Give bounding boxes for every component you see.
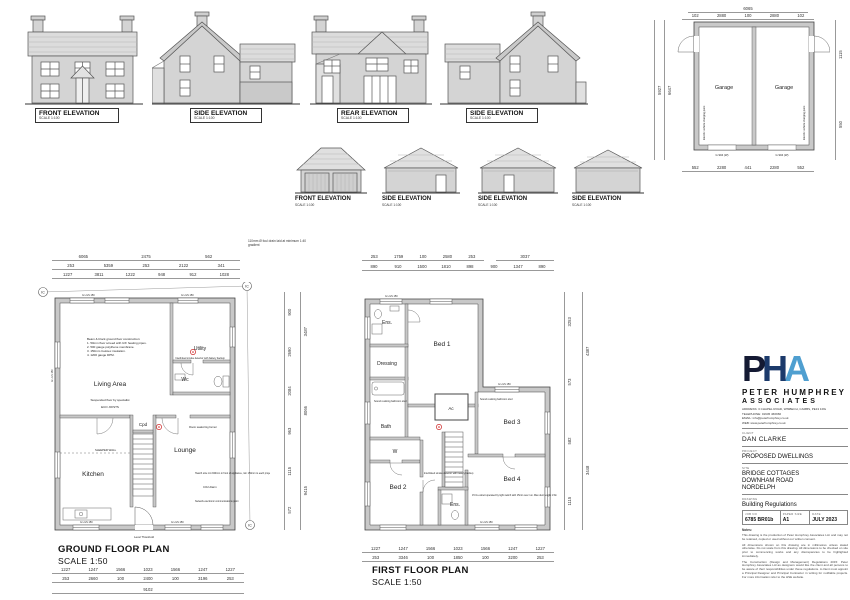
dim-value: 100: [411, 255, 435, 260]
dim-value: 1028: [209, 273, 240, 278]
dim-value: 253: [52, 264, 90, 269]
ev-charging-note: Electric vehicle charging point: [802, 105, 806, 140]
garage-room-label: Garage: [715, 85, 733, 91]
room-label-kitchen: Kitchen: [82, 471, 104, 478]
elevation-scale: SCALE 1:100: [478, 203, 560, 207]
house-side-elevation-2: SIDE ELEVATION SCALE 1:100: [440, 6, 588, 130]
pha-logo: PHA: [742, 352, 848, 386]
dim-value: 100: [417, 556, 444, 561]
drawing-label: DRAWING: [742, 497, 848, 501]
house-side-elevation-1-drawing: [152, 6, 300, 106]
dim-value: 9415: [301, 451, 310, 530]
dim-value: 3448: [583, 411, 592, 530]
dim-value: 582: [565, 411, 574, 471]
garage-side-elevation-2: SIDE ELEVATION SCALE 1:100: [478, 140, 560, 218]
lintel-label: G L/LS 150: [82, 294, 95, 297]
side-door: [504, 175, 514, 192]
window: [106, 84, 124, 98]
site-line: BRIDGE COTTAGES: [742, 471, 848, 477]
notes-paragraph-1: This drawing is the production of Peter …: [742, 534, 848, 542]
room-label-bed1: Bed 1: [434, 341, 451, 348]
dim-value: 3200: [499, 556, 526, 561]
dim-value: 948: [146, 273, 177, 278]
job-info-row: JOB NO 6785 BR01b PAPER SIZE A1 DATE JUL…: [742, 510, 848, 525]
company-name-line1: PETER HUMPHREY: [742, 388, 848, 397]
dim-value: 1566: [472, 547, 499, 552]
room-label-wc: Wc: [181, 377, 189, 383]
house-front-elevation: FRONT ELEVATION SCALE 1:100: [25, 6, 143, 130]
stairs: [445, 432, 463, 487]
elevation-title: FRONT ELEVATION: [295, 196, 371, 203]
garage-room-label: Garage: [775, 85, 793, 91]
note-suspended-floor: Suspended floor by specialist: [90, 398, 129, 402]
dim-value: 573: [565, 352, 574, 412]
window: [41, 84, 59, 98]
dim-value: 1566: [107, 568, 134, 573]
dim-value: 562: [177, 255, 240, 260]
side-door: [436, 175, 446, 192]
dim-value: 3811: [83, 273, 114, 278]
dim-value: 253: [362, 255, 386, 260]
elevation-label: SIDE ELEVATION SCALE 1:100: [190, 108, 262, 123]
dim-value: 100: [162, 577, 189, 582]
ic-label: IC: [248, 524, 252, 528]
dim-value: 552: [682, 166, 708, 171]
dim-value: 552: [788, 166, 814, 171]
room-label-dressing: Dressing: [377, 361, 397, 367]
ff-dims-bottom-2: 253334610018501003200253: [362, 554, 554, 562]
dim-value: 1247: [189, 568, 216, 573]
note-smoke: Interlinked smoke detector with battery …: [424, 472, 474, 475]
window: [324, 60, 340, 73]
elevation-label: SIDE ELEVATION SCALE 1:100: [466, 108, 538, 123]
lintel-label: G L/LS 150: [498, 383, 511, 386]
garage-side-elevation-1-drawing: [382, 140, 460, 196]
dim-value: 1347: [506, 265, 530, 270]
house-rear-elevation: REAR ELEVATION SCALE 1:100: [310, 6, 432, 130]
date-label: DATE: [812, 512, 845, 516]
project-name: PROPOSED DWELLINGS: [742, 454, 848, 460]
window: [180, 80, 190, 96]
garage-door-width: G 904 (W): [716, 153, 729, 157]
note-hearth: Hearth size min 840mm in front of applia…: [195, 472, 270, 475]
notes-label: Notes:: [742, 528, 848, 532]
dim-value: 3196: [189, 577, 216, 582]
note-sound-stud: Sound resisting bathroom stud: [374, 400, 407, 403]
date-cell: DATE JULY 2023: [810, 511, 847, 524]
garage-dims-left-inner: 6647: [664, 20, 674, 160]
stairs: [133, 434, 153, 496]
bath-fixture: [372, 382, 404, 395]
plan-title: FIRST FLOOR PLAN: [372, 566, 469, 577]
site-line: NORDELPH: [742, 485, 848, 491]
dim-value: 2084: [285, 371, 294, 411]
dim-value: 1227: [52, 273, 83, 278]
paper-size-value: A1: [783, 517, 808, 523]
dim-value: 1222: [115, 273, 146, 278]
dim-value: 5359: [90, 264, 128, 269]
dim-value: 2580: [435, 255, 459, 260]
site-line: DOWNHAM ROAD: [742, 478, 848, 484]
room-label-ens2: Ens.: [450, 502, 460, 508]
window: [41, 62, 59, 76]
elevation-label: REAR ELEVATION SCALE 1:100: [337, 108, 409, 123]
garage-dims-bottom: 55222804412280552: [682, 164, 814, 172]
ff-dims-right-1: 32535735821115: [564, 292, 574, 530]
foul-drain-note: 110mm Ø foul drain laid at minimum 1:40 …: [248, 240, 310, 248]
window: [180, 56, 190, 72]
ff-dims-top-1: 25317591002580253: [362, 253, 484, 261]
window: [214, 56, 224, 72]
project-label: PROJECT: [742, 449, 848, 453]
dim-value: 1115: [836, 20, 845, 90]
note-smoke: Interlinked smoke detector with battery …: [175, 357, 225, 360]
elevation-scale: SCALE 1:100: [470, 117, 534, 121]
ff-dims-bottom-1: 1227124715661023156612471227: [362, 545, 554, 553]
ff-dims-right-2: 43873448: [582, 292, 592, 530]
dim-value: 6065: [52, 255, 115, 260]
floor-note: 4. 1200 gauge DPM.: [87, 353, 115, 357]
job-no-value: 6785 BR01b: [745, 517, 778, 523]
room-label-bath: Bath: [381, 424, 392, 430]
patio-doors: [364, 76, 396, 103]
logo-letter-a: A: [784, 348, 806, 389]
divider: [742, 494, 848, 495]
dim-value: 253: [460, 255, 484, 260]
garage-side-elevation-3-drawing: [572, 140, 644, 196]
dim-value: 1115: [285, 451, 294, 491]
company-contact: ADDRESS: 3 CHAPEL ROAD, WISBECH, CAMBS, …: [742, 407, 848, 425]
room-label-utility: Utility: [194, 346, 207, 352]
dim-value: 253: [52, 577, 79, 582]
window: [106, 62, 124, 76]
rear-door: [322, 76, 333, 103]
divider: [742, 428, 848, 429]
dim-value: 2475: [115, 255, 178, 260]
dim-value: 1810: [434, 265, 458, 270]
dim-value: 253: [362, 556, 389, 561]
note-level-threshold: Level Threshold: [134, 535, 154, 539]
dim-value: 898: [458, 265, 482, 270]
house-side-elevation-2-drawing: [440, 6, 588, 106]
room-label-bed3: Bed 3: [504, 419, 521, 426]
dim-value: 1227: [217, 568, 244, 573]
paper-size-label: PAPER SIZE: [783, 512, 808, 516]
room-label-cpd: Cpd: [139, 422, 148, 427]
dim-value: 2660: [79, 577, 106, 582]
site-label: SITE: [742, 466, 848, 470]
dim-value: 3346: [389, 556, 416, 561]
dim-value: 1500: [410, 265, 434, 270]
dim-value: 2280: [708, 166, 734, 171]
dim-value: 4387: [583, 292, 592, 411]
dim-value: 1023: [444, 547, 471, 552]
elevation-title: SIDE ELEVATION: [382, 196, 462, 203]
window: [510, 56, 520, 72]
room-label-ens1: Ens.: [382, 320, 392, 326]
elevation-scale: SCALE 1:100: [572, 203, 646, 207]
ff-dims-top-1b: 3037: [496, 253, 554, 261]
dim-value: 890: [362, 265, 386, 270]
dim-value: 2690: [285, 332, 294, 372]
window: [510, 80, 520, 96]
lintel-label: G L/LS 150: [51, 369, 54, 382]
dim-value: 1227: [362, 547, 389, 552]
gf-dims-top-2: 25353592532122341: [52, 262, 240, 270]
ic-label: IC: [245, 285, 249, 289]
gf-dims-top-1: 60652475562: [52, 253, 240, 261]
dim-value: 1227: [52, 568, 79, 573]
plan-scale: SCALE 1:50: [58, 556, 170, 566]
dim-value: 1759: [386, 255, 410, 260]
garage-front-elevation: FRONT ELEVATION SCALE 1:100: [295, 140, 371, 218]
dim-value: 550: [836, 90, 845, 160]
paper-size-cell: PAPER SIZE A1: [781, 511, 811, 524]
note-log-burner: Room sealed log burner: [189, 425, 217, 429]
ev-charging-note: Electric vehicle charging point: [702, 105, 706, 140]
garage-plan-drawing: Garage Garage Electric vehicle charging …: [674, 18, 830, 160]
elevation-scale: SCALE 1:100: [382, 203, 462, 207]
first-floor-plan-drawing: Ens. Bed 1 Dressing Bath Ac Bed 3 W Bed …: [360, 282, 560, 544]
dim-value: 253: [127, 264, 165, 269]
dim-value: 441: [735, 166, 761, 171]
window: [404, 60, 418, 73]
elevation-scale: SCALE 1:100: [341, 117, 405, 121]
smoke-detector: [436, 424, 441, 429]
garage-door: [333, 173, 357, 192]
gf-dims-bottom-2: 253266010024001003196253: [52, 575, 244, 583]
date-value: JULY 2023: [812, 517, 845, 523]
dim-value: 9102: [52, 588, 244, 593]
dim-value: 2122: [165, 264, 203, 269]
ff-dims-top-2: 890910150018108989001347890: [362, 263, 554, 271]
note-network: Network electronic communications point: [195, 500, 239, 503]
garage-side-elevation-2-drawing: [478, 140, 558, 196]
title-block: PHA PETER HUMPHREY ASSOCIATES ADDRESS: 3…: [742, 352, 848, 598]
company-name-line2: ASSOCIATES: [742, 398, 848, 405]
ground-floor-title: GROUND FLOOR PLAN SCALE 1:50: [58, 545, 170, 566]
room-label-lounge: Lounge: [174, 447, 196, 454]
kitchen-units: [63, 508, 111, 520]
dim-value: 1227: [527, 547, 554, 552]
dim-value: 253: [217, 577, 244, 582]
note-co2: CO2 Alarm: [203, 485, 217, 489]
company-web: WEB: www.peterhumphrey.co.uk: [742, 421, 848, 426]
gf-dims-bottom-1: 1227124715661023156612471227: [52, 566, 244, 574]
gf-dims-bottom-total: 9102: [52, 586, 244, 594]
lintel-label: G L/LS 150: [171, 521, 184, 524]
elevation-title: SIDE ELEVATION: [478, 196, 560, 203]
dim-value: 1115: [565, 471, 574, 531]
dim-value: 1247: [79, 568, 106, 573]
garage-dims-right: 1115550: [835, 20, 845, 160]
dim-value: 1566: [162, 568, 189, 573]
client-label: CLIENT: [742, 431, 848, 435]
lintel-label: G L/LS 150: [80, 521, 93, 524]
dim-value: 3037: [496, 255, 554, 260]
dim-value: 910: [386, 265, 410, 270]
elevation-label: FRONT ELEVATION SCALE 1:100: [35, 108, 119, 123]
gf-dims-top-3: 1227381112229489121028: [52, 271, 240, 279]
client-name: DAN CLARKE: [742, 436, 848, 443]
dim-value: 912: [177, 273, 208, 278]
window: [460, 66, 470, 79]
ic-label: IC: [41, 291, 45, 295]
lintel-label: G L/LS 150: [385, 295, 398, 298]
dim-value: 900: [285, 292, 294, 332]
dim-value: 1247: [499, 547, 526, 552]
dim-value: 572: [285, 490, 294, 530]
house-rear-elevation-drawing: [310, 6, 432, 106]
garage-dims-left-outer: 5927: [654, 20, 664, 160]
notes-paragraph-2: All dimensions shown on this drawing are…: [742, 544, 848, 559]
room-label-living: Living Area: [94, 381, 127, 388]
room-label-w: W: [393, 449, 398, 455]
dim-value: 890: [530, 265, 554, 270]
room-label-bed2: Bed 2: [390, 484, 407, 491]
dim-value: 100: [472, 556, 499, 561]
garage-front-elevation-drawing: [295, 140, 367, 196]
logo-letter-h: H: [762, 348, 784, 389]
dim-value: 963: [285, 411, 294, 451]
drawing-sheet: FRONT ELEVATION SCALE 1:100: [0, 0, 850, 600]
garage-door-width: G 904 (W): [776, 153, 789, 157]
dim-value: 100: [107, 577, 134, 582]
dim-value: 253: [527, 556, 554, 561]
elevation-scale: SCALE 1:100: [194, 117, 258, 121]
dim-value: 1850: [444, 556, 471, 561]
dim-value: 5927: [655, 20, 664, 160]
dim-value: 3253: [565, 292, 574, 352]
garage-side-elevation-1: SIDE ELEVATION SCALE 1:100: [382, 140, 462, 218]
first-floor-title: FIRST FLOOR PLAN SCALE 1:50: [372, 566, 469, 587]
job-no-cell: JOB NO 6785 BR01b: [743, 511, 781, 524]
gf-dims-right-1: 900269020849631115572: [284, 292, 294, 530]
drawing-name: Building Regulations: [742, 502, 848, 508]
dim-value: 341: [202, 264, 240, 269]
window: [250, 66, 260, 79]
divider: [742, 463, 848, 464]
plan-title: GROUND FLOOR PLAN: [58, 545, 170, 556]
elevation-title: SIDE ELEVATION: [572, 196, 646, 203]
room-label-bed4: Bed 4: [504, 476, 521, 483]
house-front-elevation-drawing: [25, 6, 143, 106]
dim-value: 2400: [134, 577, 161, 582]
dim-value: 1566: [417, 547, 444, 552]
job-no-label: JOB NO: [745, 512, 778, 516]
dim-value: 3487: [301, 292, 310, 371]
note-eco-joists: ECO JOISTS: [101, 405, 119, 409]
dim-value: 900: [482, 265, 506, 270]
dim-value: 1023: [134, 568, 161, 573]
lintel-label: G L/LS 150: [181, 294, 194, 297]
garage-door: [305, 173, 329, 192]
note-extract: 15 l/s extract operated by light switch …: [472, 494, 557, 497]
house-side-elevation-1: SIDE ELEVATION SCALE 1:100: [152, 6, 300, 130]
dim-value: 6647: [665, 20, 674, 160]
gf-dims-right-2: 348780669415: [300, 292, 310, 530]
window: [548, 56, 558, 72]
window: [366, 58, 388, 71]
note-sleeper-wall: SLEEPER WALL: [95, 448, 117, 452]
room-label-ac: Ac: [448, 406, 454, 411]
garage-side-elevation-3: SIDE ELEVATION SCALE 1:100: [572, 140, 646, 218]
elevation-scale: SCALE 1:100: [39, 117, 115, 121]
plan-scale: SCALE 1:50: [372, 577, 469, 587]
note-sound-stud: Sound resisting bathroom stud: [480, 398, 513, 401]
divider: [742, 446, 848, 447]
dim-value: 1247: [389, 547, 416, 552]
dim-value: 2280: [761, 166, 787, 171]
dim-value: 8066: [301, 371, 310, 450]
notes-paragraph-3: The Construction (Design and Management)…: [742, 561, 848, 580]
garage-plan: 6065 10228801002880102 5927 6647 1115550…: [652, 2, 850, 210]
logo-letter-p: P: [742, 348, 762, 389]
elevation-scale: SCALE 1:100: [295, 203, 371, 207]
ground-floor-plan-drawing: IC IC IC: [35, 282, 270, 544]
lintel-label: G L/LS 150: [480, 521, 493, 524]
